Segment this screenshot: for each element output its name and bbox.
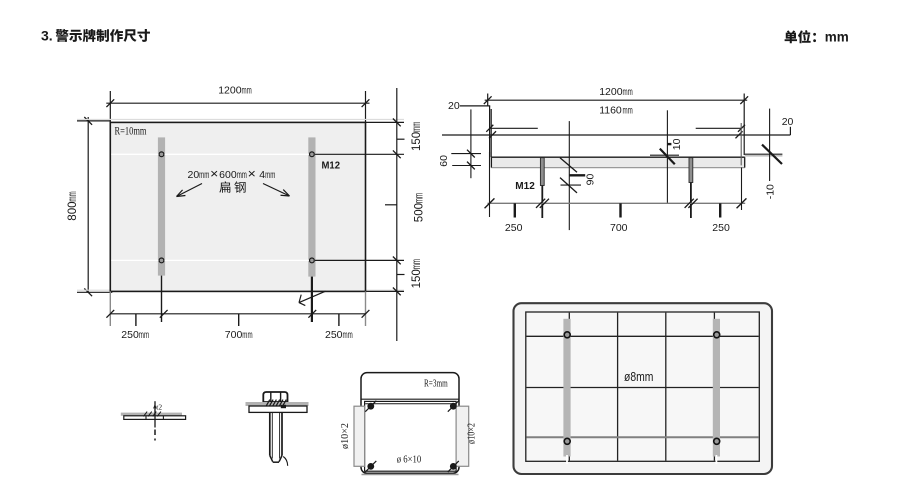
- svg-text:10: 10: [671, 138, 683, 150]
- svg-text:×: ×: [210, 167, 218, 181]
- svg-text:mm: mm: [414, 193, 426, 203]
- svg-text:60: 60: [438, 155, 450, 167]
- svg-text:1200: 1200: [218, 85, 242, 97]
- svg-text:250: 250: [712, 222, 730, 234]
- svg-text:mm: mm: [139, 329, 149, 341]
- svg-text:90: 90: [585, 174, 597, 186]
- svg-text:700: 700: [225, 329, 243, 341]
- svg-text:mm: mm: [199, 169, 209, 181]
- svg-text:mm: mm: [411, 122, 423, 132]
- svg-text:×: ×: [248, 167, 256, 181]
- svg-text:mm: mm: [265, 169, 275, 181]
- svg-text:1160: 1160: [599, 105, 622, 117]
- svg-text:-10: -10: [764, 184, 776, 199]
- svg-text:500: 500: [414, 203, 426, 222]
- svg-text:R=3mm: R=3mm: [424, 379, 448, 390]
- svg-text:mm: mm: [237, 169, 247, 181]
- svg-text:ø10×2: ø10×2: [340, 423, 351, 449]
- svg-text:ø10×2: ø10×2: [466, 423, 477, 444]
- svg-text:700: 700: [610, 222, 628, 234]
- svg-text:250: 250: [505, 222, 523, 234]
- svg-text:150: 150: [411, 269, 423, 288]
- svg-text:1200: 1200: [599, 86, 623, 98]
- svg-text:800: 800: [67, 202, 79, 221]
- svg-text:20: 20: [188, 169, 200, 181]
- svg-text:mm: mm: [343, 329, 353, 341]
- svg-text:250: 250: [325, 329, 343, 341]
- svg-text:3.: 3.: [41, 28, 53, 44]
- svg-text:mm: mm: [623, 105, 633, 117]
- svg-text:20: 20: [448, 100, 460, 112]
- svg-text:250: 250: [121, 329, 139, 341]
- svg-text:ø8mm: ø8mm: [624, 369, 653, 384]
- svg-text:M12: M12: [322, 161, 341, 172]
- svg-text:600: 600: [219, 169, 237, 181]
- svg-text:t2: t2: [156, 403, 162, 412]
- svg-text:mm: mm: [242, 329, 252, 341]
- svg-text:20: 20: [782, 116, 794, 128]
- svg-text:M12: M12: [515, 181, 535, 192]
- svg-text:mm: mm: [825, 30, 849, 45]
- svg-text:R=10mm: R=10mm: [115, 126, 147, 138]
- svg-text:mm: mm: [67, 191, 79, 201]
- svg-text:mm: mm: [623, 86, 633, 98]
- svg-text:mm: mm: [411, 259, 423, 269]
- svg-text:mm: mm: [242, 85, 252, 97]
- svg-text:ø 6×10: ø 6×10: [397, 454, 421, 465]
- svg-text:150: 150: [411, 132, 423, 151]
